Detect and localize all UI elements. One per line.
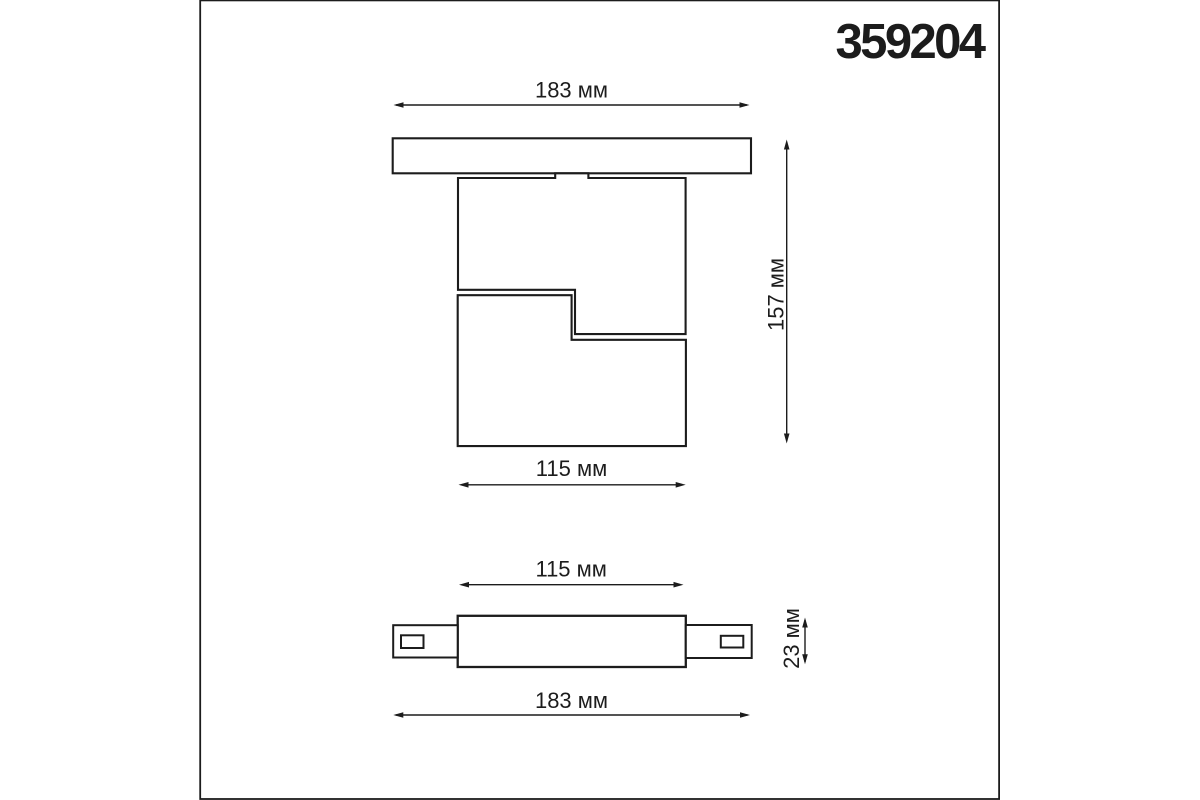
svg-text:183 мм: 183 мм <box>535 78 608 103</box>
svg-text:157 мм: 157 мм <box>764 258 789 331</box>
svg-text:23 мм: 23 мм <box>779 608 804 669</box>
svg-text:359204: 359204 <box>836 15 986 69</box>
svg-text:115 мм: 115 мм <box>536 456 607 481</box>
svg-text:183 мм: 183 мм <box>535 688 608 713</box>
svg-text:115 мм: 115 мм <box>535 557 606 582</box>
